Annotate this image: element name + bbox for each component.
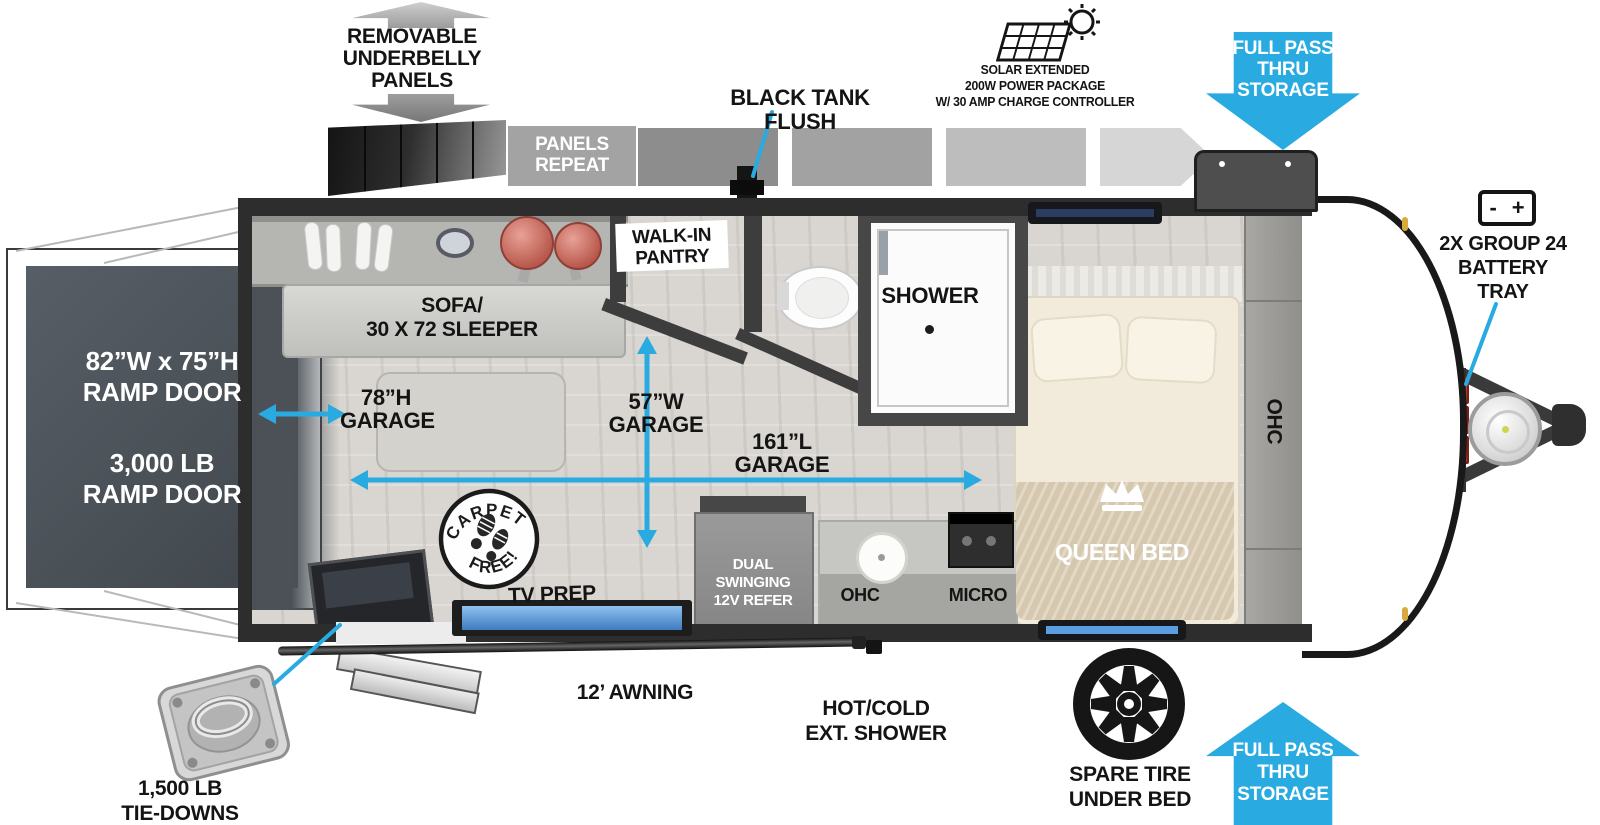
black-tank-flush-label: BLACK TANK FLUSH <box>698 86 902 134</box>
battery-plus: + <box>1512 197 1525 219</box>
battery-minus: - <box>1489 197 1496 219</box>
panel-chevron <box>792 128 932 186</box>
tank-ring <box>1486 410 1530 454</box>
ramp-door-weight-label: 3,000 LB RAMP DOOR <box>42 448 282 510</box>
bed-top-window <box>1028 202 1162 224</box>
battery-tray-label: 2X GROUP 24 BATTERY TRAY <box>1430 232 1576 304</box>
queen-bed-label: QUEEN BED <box>1052 540 1192 565</box>
ohc-kitchen-label: OHC <box>828 586 892 605</box>
screw-dot <box>1219 161 1225 167</box>
panel-seam <box>400 120 402 196</box>
door-glass <box>322 562 414 608</box>
cabinet-divider <box>1246 300 1304 302</box>
bar-stool <box>554 222 602 270</box>
full-pass-thru-bottom-label: FULL PASS THRU STORAGE <box>1206 740 1360 806</box>
ramp-perspective-line <box>16 206 244 252</box>
ramp-door-size-label: 82”W x 75”H RAMP DOOR <box>42 346 282 408</box>
cooktop <box>948 512 1014 568</box>
pantry-label: WALK-IN PANTRY <box>615 224 728 270</box>
panel-chevron <box>946 128 1086 186</box>
shower-label: SHOWER <box>866 284 994 308</box>
refer-top-flap <box>700 496 806 512</box>
awning-end-cap <box>852 636 866 649</box>
tv-prep-label: TV PREP <box>492 582 613 609</box>
panels-repeat-label: PANELS REPEAT <box>508 134 636 176</box>
micro-label: MICRO <box>936 586 1020 605</box>
ext-shower-port <box>866 640 882 654</box>
garage-width-label: 57”W GARAGE <box>606 390 706 436</box>
underbelly-label: REMOVABLE UNDERBELLY PANELS <box>322 26 502 92</box>
front-storage-box <box>1194 150 1318 212</box>
hitch-coupler <box>1552 404 1586 446</box>
ohc-bedroom-label: OHC <box>1262 392 1285 450</box>
pillow <box>1030 313 1124 383</box>
window-glass <box>1036 209 1154 217</box>
tv-screen <box>462 606 682 630</box>
bed-bottom-window <box>1038 620 1186 640</box>
shower-drain <box>925 325 934 334</box>
knob <box>986 536 996 546</box>
marker-light <box>1402 217 1408 231</box>
toilet-seat <box>795 277 849 319</box>
shower-head <box>879 231 888 275</box>
shower-tray <box>877 229 1009 407</box>
knob <box>962 536 972 546</box>
door-gap <box>336 622 466 644</box>
faucet-dot <box>878 554 885 561</box>
panel-seam <box>364 120 366 196</box>
pillow <box>1124 316 1217 385</box>
black-tank-flush-valve <box>730 180 764 195</box>
refer-label: DUAL SWINGING 12V REFER <box>694 556 812 610</box>
underbelly-panel-graphic <box>328 120 506 196</box>
garage-height-label: 78”H GARAGE <box>340 386 432 432</box>
shower-stall <box>858 210 1028 426</box>
solar-package-label: SOLAR EXTENDED 200W POWER PACKAGE W/ 30 … <box>934 62 1135 110</box>
bath-wall <box>744 214 762 332</box>
marker-light <box>1402 607 1408 621</box>
panel-chevron <box>638 128 778 186</box>
window-glass <box>1046 626 1178 634</box>
battery-icon: - + <box>1478 190 1536 226</box>
trailer-left-wall <box>238 198 252 642</box>
propane-tank <box>1468 392 1542 466</box>
rv-floorplan-diagram: REMOVABLE UNDERBELLY PANELS PANELS REPEA… <box>0 0 1600 825</box>
tie-down-icon <box>146 664 302 784</box>
panel-seam <box>436 120 438 196</box>
crown-icon <box>1096 476 1148 516</box>
counter-item <box>325 224 342 272</box>
tie-downs-label: 1,500 LB TIE-DOWNS <box>70 776 290 825</box>
cabinet-divider <box>1246 548 1304 550</box>
underbelly-down-arrow-icon <box>352 94 490 122</box>
toilet-hinge <box>777 282 789 310</box>
panel-seam <box>472 120 474 196</box>
screw-dot <box>1285 161 1291 167</box>
spare-tire-label: SPARE TIRE UNDER BED <box>1056 762 1204 812</box>
tank-valve-dot <box>1502 426 1509 433</box>
solar-panel-icon <box>996 2 1108 64</box>
kitchen-sink <box>856 532 908 584</box>
awning-label: 12’ AWNING <box>540 682 730 705</box>
sofa-label: SOFA/ 30 X 72 SLEEPER <box>302 294 602 342</box>
garage-length-label: 161”L GARAGE <box>722 430 842 476</box>
cooktop-band <box>950 514 1012 524</box>
spare-tire-icon <box>1070 645 1188 763</box>
counter-item <box>355 222 372 271</box>
counter-sink <box>436 228 474 258</box>
full-pass-thru-top-label: FULL PASS THRU STORAGE <box>1206 38 1360 101</box>
bar-stool <box>500 216 554 270</box>
ext-shower-label: HOT/COLD EXT. SHOWER <box>786 696 966 746</box>
